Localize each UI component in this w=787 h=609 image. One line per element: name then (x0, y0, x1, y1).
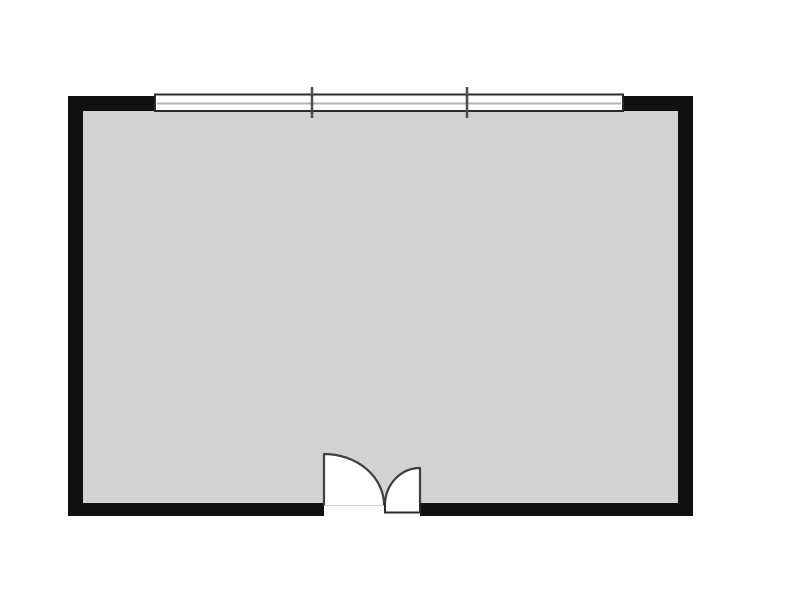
floor-plan-drawing (0, 0, 787, 609)
floor-plan-canvas (0, 0, 787, 609)
room-floor[interactable] (83, 111, 678, 503)
door-closed-leaf-slab (385, 503, 420, 513)
